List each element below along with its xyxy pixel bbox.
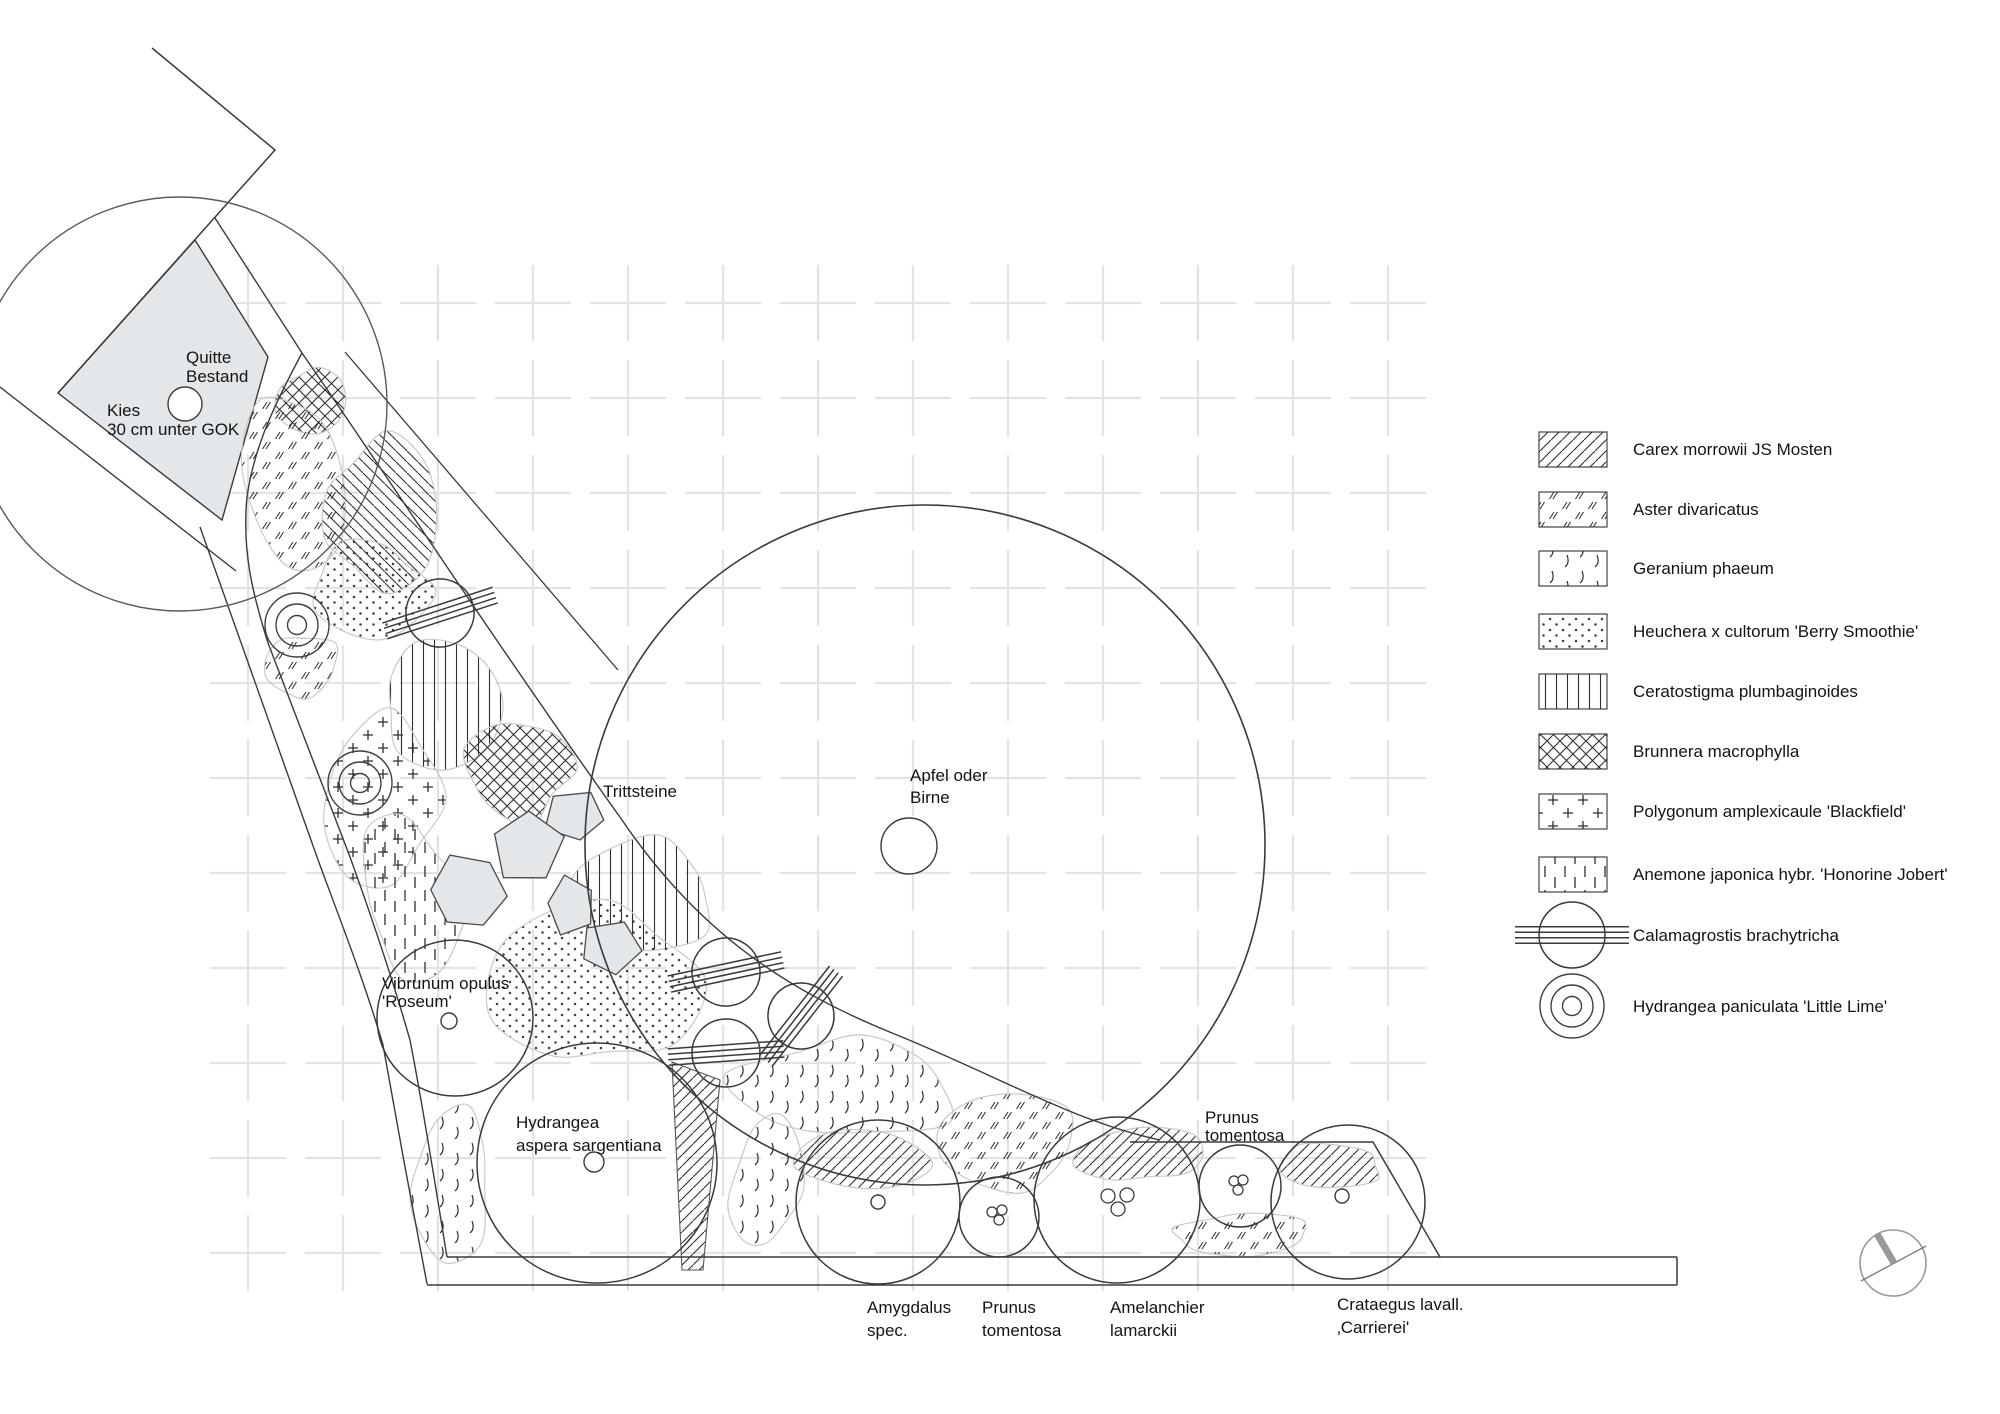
grid-cross <box>970 455 1046 531</box>
label-vibrunum-line: Vibrunum opulus <box>382 974 509 993</box>
grid-cross <box>1350 550 1426 626</box>
label-prunus-upper: Prunustomentosa <box>1205 1108 1285 1145</box>
label-vibrunum-line: 'Roseum' <box>382 992 452 1011</box>
legend-label: Hydrangea paniculata 'Little Lime' <box>1633 997 1887 1016</box>
grid-cross <box>780 360 856 436</box>
label-prunus-bottom-line: Prunus <box>982 1298 1036 1317</box>
stem-circle <box>1238 1175 1248 1185</box>
grid-cross <box>875 645 951 721</box>
patch-carex <box>1280 1143 1379 1187</box>
grid-cross <box>685 360 761 436</box>
grid-cross <box>590 360 666 436</box>
grid-cross <box>1350 740 1426 816</box>
grid-cross <box>875 1215 951 1291</box>
patch-aster <box>264 638 337 699</box>
legend-item: Anemone japonica hybr. 'Honorine Jobert' <box>1539 857 1948 892</box>
label-apfel: Apfel oderBirne <box>910 766 988 807</box>
legend-label: Heuchera x cultorum 'Berry Smoothie' <box>1633 622 1918 641</box>
legend-item: Heuchera x cultorum 'Berry Smoothie' <box>1539 614 1918 649</box>
grid-cross <box>970 360 1046 436</box>
grid-cross <box>685 550 761 626</box>
grid-cross <box>780 550 856 626</box>
grid-cross <box>780 835 856 911</box>
grid-cross <box>1255 930 1331 1006</box>
label-amygdalus-line: spec. <box>867 1321 908 1340</box>
grid-cross <box>590 645 666 721</box>
grid-cross <box>1065 265 1141 341</box>
grid-cross <box>685 265 761 341</box>
legend-label: Brunnera macrophylla <box>1633 742 1800 761</box>
grid-cross <box>1255 1025 1331 1101</box>
label-prunus-upper-line: Prunus <box>1205 1108 1259 1127</box>
label-trittsteine-line: Trittsteine <box>603 782 677 801</box>
grid-cross <box>305 930 381 1006</box>
planting-plan-drawing: QuitteBestandKies30 cm unter GOKTrittste… <box>0 0 2000 1414</box>
amygdalus-trunk <box>871 1195 885 1209</box>
grid-cross <box>495 455 571 531</box>
amelanchier-stems <box>1101 1188 1134 1216</box>
grid-cross <box>305 1120 381 1196</box>
label-trittsteine: Trittsteine <box>603 782 677 801</box>
grid-cross <box>685 645 761 721</box>
grid-cross <box>590 265 666 341</box>
legend-item: Brunnera macrophylla <box>1539 734 1800 769</box>
grid-cross <box>875 265 951 341</box>
grid-cross <box>685 740 761 816</box>
legend-swatch-carex <box>1539 432 1607 467</box>
grid-cross <box>1255 645 1331 721</box>
label-hydrangea-aspera-line: Hydrangea <box>516 1113 600 1132</box>
grid-cross <box>495 1215 571 1291</box>
legend-item: Calamagrostis brachytricha <box>1515 902 1840 968</box>
grid-cross <box>1255 360 1331 436</box>
grid-cross <box>1065 455 1141 531</box>
label-amelanchier-line: lamarckii <box>1110 1321 1177 1340</box>
grid-cross <box>1160 455 1236 531</box>
grid-cross <box>1065 930 1141 1006</box>
grid-cross <box>1350 265 1426 341</box>
grid-cross <box>1255 455 1331 531</box>
stem-circle <box>1111 1202 1125 1216</box>
grid-cross <box>1350 645 1426 721</box>
label-amelanchier-line: Amelanchier <box>1110 1298 1205 1317</box>
grid-cross <box>875 550 951 626</box>
label-quitte-line: Bestand <box>186 367 248 386</box>
label-amygdalus-line: Amygdalus <box>867 1298 951 1317</box>
crataegus-trunk <box>1335 1189 1349 1203</box>
grid-cross <box>210 1215 286 1291</box>
stem-circle <box>1101 1189 1115 1203</box>
grid-cross <box>780 930 856 1006</box>
grid-cross <box>780 645 856 721</box>
legend-item: Geranium phaeum <box>1539 551 1774 586</box>
grid-cross <box>210 930 286 1006</box>
legend-item: Aster divaricatus <box>1539 492 1759 527</box>
quitte-trunk <box>168 387 202 421</box>
grid-cross <box>1160 835 1236 911</box>
grid-cross <box>1255 265 1331 341</box>
patch-geranium <box>728 1114 805 1246</box>
stem-circle <box>1233 1185 1243 1195</box>
patch-carex-wedge <box>672 1062 720 1270</box>
patch-geranium <box>724 1035 953 1133</box>
grid-cross <box>495 265 571 341</box>
label-crataegus: Crataegus lavall.‚Carrierei' <box>1337 1295 1464 1337</box>
grid-cross <box>970 265 1046 341</box>
north-symbol <box>1860 1230 1926 1296</box>
north-line <box>1861 1246 1926 1281</box>
legend-swatch-anemone <box>1539 857 1607 892</box>
grid-cross <box>1160 265 1236 341</box>
grid-cross <box>210 1120 286 1196</box>
grid-cross <box>400 360 476 436</box>
legend-swatch-heuchera <box>1539 614 1607 649</box>
grid-cross <box>1065 740 1141 816</box>
stem-circle <box>997 1205 1007 1215</box>
grid-cross <box>590 550 666 626</box>
grid-cross <box>495 360 571 436</box>
label-crataegus-line: ‚Carrierei' <box>1337 1318 1409 1337</box>
label-hydrangea-aspera-line: aspera sargentiana <box>516 1136 662 1155</box>
legend-swatch-geranium <box>1539 551 1607 586</box>
grid-cross <box>305 1025 381 1101</box>
grid-cross <box>1255 740 1331 816</box>
grid-cross <box>495 645 571 721</box>
grid-cross <box>1350 930 1426 1006</box>
legend-item: Ceratostigma plumbaginoides <box>1539 674 1858 709</box>
label-prunus-upper-line: tomentosa <box>1205 1126 1285 1145</box>
grid-cross <box>400 265 476 341</box>
grid-cross <box>1065 645 1141 721</box>
planting-plan-page: QuitteBestandKies30 cm unter GOKTrittste… <box>0 0 2000 1414</box>
legend-swatch-aster <box>1539 492 1607 527</box>
apfel-trunk <box>881 818 937 874</box>
grid-cross <box>1350 360 1426 436</box>
grid-cross <box>685 455 761 531</box>
grid-cross <box>970 550 1046 626</box>
grid-cross <box>590 740 666 816</box>
grid-cross <box>1255 550 1331 626</box>
label-prunus-bottom: Prunustomentosa <box>982 1298 1062 1340</box>
grid-cross <box>590 455 666 531</box>
grid-cross <box>1065 1215 1141 1291</box>
grid-cross <box>1065 835 1141 911</box>
legend-item: Hydrangea paniculata 'Little Lime' <box>1540 974 1887 1038</box>
ring <box>1563 997 1582 1016</box>
grid-cross <box>1065 550 1141 626</box>
label-prunus-bottom-line: tomentosa <box>982 1321 1062 1340</box>
grid-cross <box>210 835 286 911</box>
north-bar <box>1877 1234 1894 1263</box>
grid-cross <box>1350 835 1426 911</box>
label-amelanchier: Amelanchierlamarckii <box>1110 1298 1205 1340</box>
legend-label: Calamagrostis brachytricha <box>1633 926 1840 945</box>
legend-label: Carex morrowii JS Mosten <box>1633 440 1832 459</box>
grid-cross <box>875 455 951 531</box>
prunus-upper-stems <box>1229 1175 1248 1195</box>
grid-cross <box>1160 1025 1236 1101</box>
label-kies-line: Kies <box>107 401 140 420</box>
label-hydrangea-aspera: Hydrangeaaspera sargentiana <box>516 1113 662 1155</box>
grid-cross <box>1160 930 1236 1006</box>
ring <box>288 616 307 635</box>
grid-cross <box>495 550 571 626</box>
grid-cross <box>970 1025 1046 1101</box>
label-kies-line: 30 cm unter GOK <box>107 420 240 439</box>
grid-cross <box>1255 835 1331 911</box>
grid-cross <box>970 645 1046 721</box>
grid-cross <box>210 740 286 816</box>
prunus-bottom-stems <box>987 1205 1007 1225</box>
stem-circle <box>987 1207 997 1217</box>
legend-label: Geranium phaeum <box>1633 559 1774 578</box>
ring <box>1540 974 1604 1038</box>
legend-label: Aster divaricatus <box>1633 500 1759 519</box>
label-quitte-line: Quitte <box>186 348 231 367</box>
grid-cross <box>875 360 951 436</box>
grid-cross <box>970 930 1046 1006</box>
label-apfel-line: Apfel oder <box>910 766 988 785</box>
grid-cross <box>780 455 856 531</box>
legend-item: Carex morrowii JS Mosten <box>1539 432 1832 467</box>
label-crataegus-line: Crataegus lavall. <box>1337 1295 1464 1314</box>
grid-cross <box>780 1215 856 1291</box>
grid-cross <box>1350 455 1426 531</box>
stem-circle <box>994 1215 1004 1225</box>
grid-cross <box>1160 550 1236 626</box>
legend-swatch-ceratostigma <box>1539 674 1607 709</box>
grid-cross <box>1350 1025 1426 1101</box>
grid-cross <box>305 1215 381 1291</box>
grid-cross <box>1065 360 1141 436</box>
grid-cross <box>875 930 951 1006</box>
legend-swatch-polygonum <box>1539 794 1607 829</box>
legend-swatch-brunnera <box>1539 734 1607 769</box>
legend-item: Polygonum amplexicaule 'Blackfield' <box>1539 794 1906 829</box>
label-amygdalus: Amygdalusspec. <box>867 1298 951 1340</box>
grid-cross <box>780 265 856 341</box>
grid-cross <box>1160 740 1236 816</box>
patch-geranium <box>410 1104 485 1263</box>
grid-cross <box>1160 360 1236 436</box>
grid-cross <box>1065 1025 1141 1101</box>
grid-cross <box>780 740 856 816</box>
grass-circle <box>1539 902 1605 968</box>
legend-label: Anemone japonica hybr. 'Honorine Jobert' <box>1633 865 1948 884</box>
grid-cross <box>210 1025 286 1101</box>
legend-label: Ceratostigma plumbaginoides <box>1633 682 1858 701</box>
ring <box>1551 985 1593 1027</box>
label-apfel-line: Birne <box>910 788 950 807</box>
legend-hydrangea-symbol <box>1540 974 1604 1038</box>
grid-cross <box>1350 1215 1426 1291</box>
stem-circle <box>1120 1188 1134 1202</box>
vibrunum-trunk <box>441 1013 457 1029</box>
legend-label: Polygonum amplexicaule 'Blackfield' <box>1633 802 1906 821</box>
legend-calamagrostis-symbol <box>1515 902 1629 968</box>
grid-cross <box>970 835 1046 911</box>
legend: Carex morrowii JS MostenAster divaricatu… <box>1515 432 1948 1038</box>
hydrangea-aspera-trunk <box>584 1152 604 1172</box>
grid-cross <box>400 1025 476 1101</box>
